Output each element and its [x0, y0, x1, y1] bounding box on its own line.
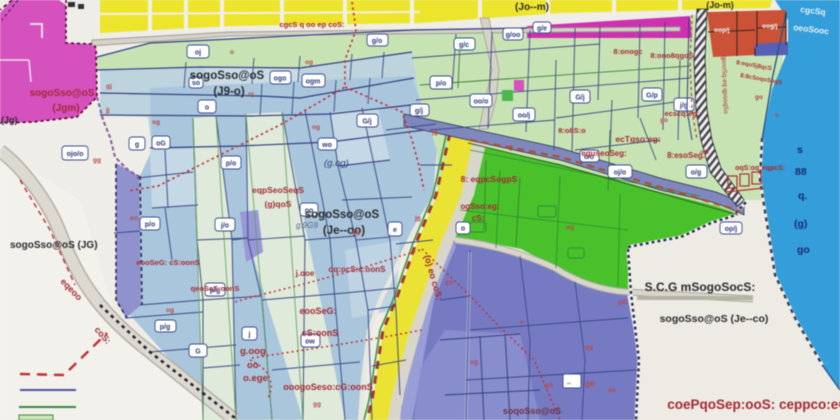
svg-text:oop/j: oop/j: [714, 27, 730, 34]
svg-text:op/j: op/j: [725, 226, 737, 233]
svg-text:j/o: j/o: [220, 223, 229, 230]
svg-text:g/c: g/c: [459, 42, 469, 49]
svg-text:(g): (g): [794, 218, 807, 230]
svg-text:sogoSso@oS: sogoSso@oS: [30, 88, 95, 99]
svg-text:eooSeG: cS:oonS: eooSeG: cS:oonS: [136, 258, 199, 267]
svg-text:oj: oj: [248, 91, 254, 98]
svg-text:oj: oj: [195, 50, 201, 57]
svg-text:go: go: [660, 117, 668, 124]
svg-text:cS:oonS: cS:oonS: [302, 328, 339, 338]
svg-text:og: og: [470, 359, 478, 366]
svg-text:gG: gG: [618, 299, 627, 306]
svg-text:jg: jg: [414, 215, 421, 222]
svg-text:og: og: [166, 307, 174, 314]
svg-text:ogo: ogo: [274, 76, 287, 83]
svg-text:(g.og): (g.og): [324, 158, 349, 169]
svg-text:q.: q.: [798, 190, 807, 202]
svg-text:qeoScS:oonS: qeoScS:oonS: [191, 284, 240, 293]
svg-text:88: 88: [795, 166, 807, 178]
svg-text:G: G: [195, 349, 201, 356]
svg-text:p/o: p/o: [145, 222, 156, 229]
svg-text:G/j: G/j: [575, 95, 584, 102]
svg-text:o: o: [461, 226, 465, 233]
svg-text:g.9G9: g.9G9: [296, 221, 318, 230]
svg-text:ecTgso:eg:: ecTgso:eg:: [615, 134, 661, 144]
svg-text:sogoSso@oS: sogoSso@oS: [305, 209, 380, 221]
svg-text:og: og: [566, 224, 574, 231]
svg-text:p/o: p/o: [436, 81, 447, 88]
svg-text:8:o8S:o: 8:o8S:o: [558, 126, 586, 135]
svg-text:eguseoSeg:: eguseoSeg:: [581, 149, 626, 158]
svg-text:G/p: G/p: [646, 93, 658, 100]
svg-text:gg: gg: [585, 344, 593, 351]
svg-text:ogSso:eg:: ogSso:eg:: [460, 202, 499, 211]
svg-text:ojo/o: ojo/o: [67, 151, 84, 158]
svg-text:og: og: [505, 144, 513, 151]
svg-text:(J9-o): (J9-o): [213, 86, 244, 98]
svg-text:o: o: [520, 319, 524, 326]
svg-text:og: og: [152, 119, 160, 126]
svg-text:sogoSso@oS (JG): sogoSso@oS (JG): [10, 240, 98, 251]
svg-text:ogm: ogm: [306, 79, 321, 86]
svg-text:oo/o: oo/o: [474, 99, 489, 106]
svg-text:o.ege: o.ege: [243, 373, 268, 384]
svg-text:g: g: [135, 142, 139, 149]
svg-text:ow: ow: [305, 339, 315, 346]
svg-text:oqS:oq:eqpcS:: oqS:oq:eqpcS:: [735, 165, 785, 172]
svg-text:o: o: [775, 112, 779, 119]
svg-text:8: eqpcSogpS: 8: eqpcSogpS: [461, 174, 518, 184]
svg-text:o: o: [230, 49, 234, 56]
svg-text:oo: oo: [247, 360, 259, 371]
svg-text:e: e: [393, 227, 397, 234]
svg-text:(Jgm): (Jgm): [52, 103, 79, 114]
svg-text:(g)qoS: (g)qoS: [265, 199, 292, 209]
svg-text:oj/o: oj/o: [614, 170, 626, 177]
svg-text:(Jo--m): (Jo--m): [515, 2, 549, 13]
svg-text:p/g: p/g: [160, 324, 171, 331]
svg-text:sogoSso@oS (Je--co): sogoSso@oS (Je--co): [660, 313, 769, 325]
svg-text:sogoSso@oS: sogoSso@oS: [190, 70, 265, 82]
svg-text:cgcS q oo ep coS:: cgcS q oo ep coS:: [279, 20, 344, 29]
svg-text:gg: gg: [93, 157, 101, 164]
svg-text:jg: jg: [431, 129, 438, 136]
svg-text:oo: oo: [130, 215, 138, 222]
svg-text:G/j: G/j: [362, 119, 371, 126]
svg-text:wo: wo: [321, 142, 332, 149]
svg-text:o: o: [205, 105, 209, 112]
svg-text:og: og: [312, 124, 320, 131]
svg-text:j.ooe: j.ooe: [295, 269, 315, 278]
svg-text:o/g: o/g: [691, 170, 702, 177]
svg-text:og: og: [305, 59, 313, 66]
svg-text:oo: oo: [608, 387, 616, 394]
svg-text:S.C.G mSogoSocS:: S.C.G mSogoSocS:: [645, 280, 756, 294]
svg-text:go: go: [797, 244, 810, 256]
svg-text:g/oo: g/oo: [506, 32, 521, 39]
svg-text:oo/j: oo/j: [518, 113, 530, 120]
svg-text:oG: oG: [156, 141, 166, 148]
svg-text:8:onogc: 8:onogc: [613, 47, 642, 56]
svg-text:go: go: [755, 94, 763, 101]
svg-text:gg: gg: [313, 401, 321, 408]
svg-text:cS:: cS:: [472, 214, 484, 223]
svg-text:g/e: g/e: [537, 26, 547, 33]
svg-text:s: s: [797, 144, 803, 156]
svg-text:oG: oG: [700, 149, 709, 156]
svg-text:jj: jj: [105, 107, 110, 114]
svg-text:j: j: [248, 332, 251, 339]
svg-text:8:ono8qgoS: 8:ono8qgoS: [650, 51, 693, 60]
svg-text:gj: gj: [106, 83, 112, 90]
svg-text:gg: gg: [352, 229, 360, 236]
svg-text:coePqoSep:ooS: ceppco:eG: coePqoSep:ooS: ceppco:eG: [667, 397, 840, 412]
svg-text:..: ..: [567, 379, 571, 386]
svg-text:g/j: g/j: [415, 108, 423, 115]
svg-text:ecscq:eg:: ecscq:eg:: [664, 109, 699, 118]
svg-text:(Jo-m): (Jo-m): [706, 0, 734, 10]
svg-text:p/o: p/o: [226, 161, 237, 168]
svg-text:oog/j: oog/j: [762, 23, 778, 30]
svg-text:go: go: [545, 382, 553, 389]
svg-text:soqoSso@oS: soqoSso@oS: [503, 406, 561, 416]
svg-text:g.oog: g.oog: [240, 346, 266, 357]
svg-text:g/o: g/o: [372, 38, 383, 45]
svg-text:go: go: [445, 279, 453, 286]
svg-text:eooSeG:: eooSeG:: [299, 306, 336, 316]
svg-text:ooogoSeso:cG:oonS: ooogoSeso:cG:oonS: [283, 382, 373, 392]
svg-text:(Jg): (Jg): [1, 115, 18, 125]
svg-text:eqpSeoSeqS: eqpSeoSeqS: [252, 185, 304, 195]
svg-text:oq:ocS:c:oonS: oq:ocS:c:oonS: [329, 265, 387, 274]
svg-text:go: go: [585, 379, 595, 388]
